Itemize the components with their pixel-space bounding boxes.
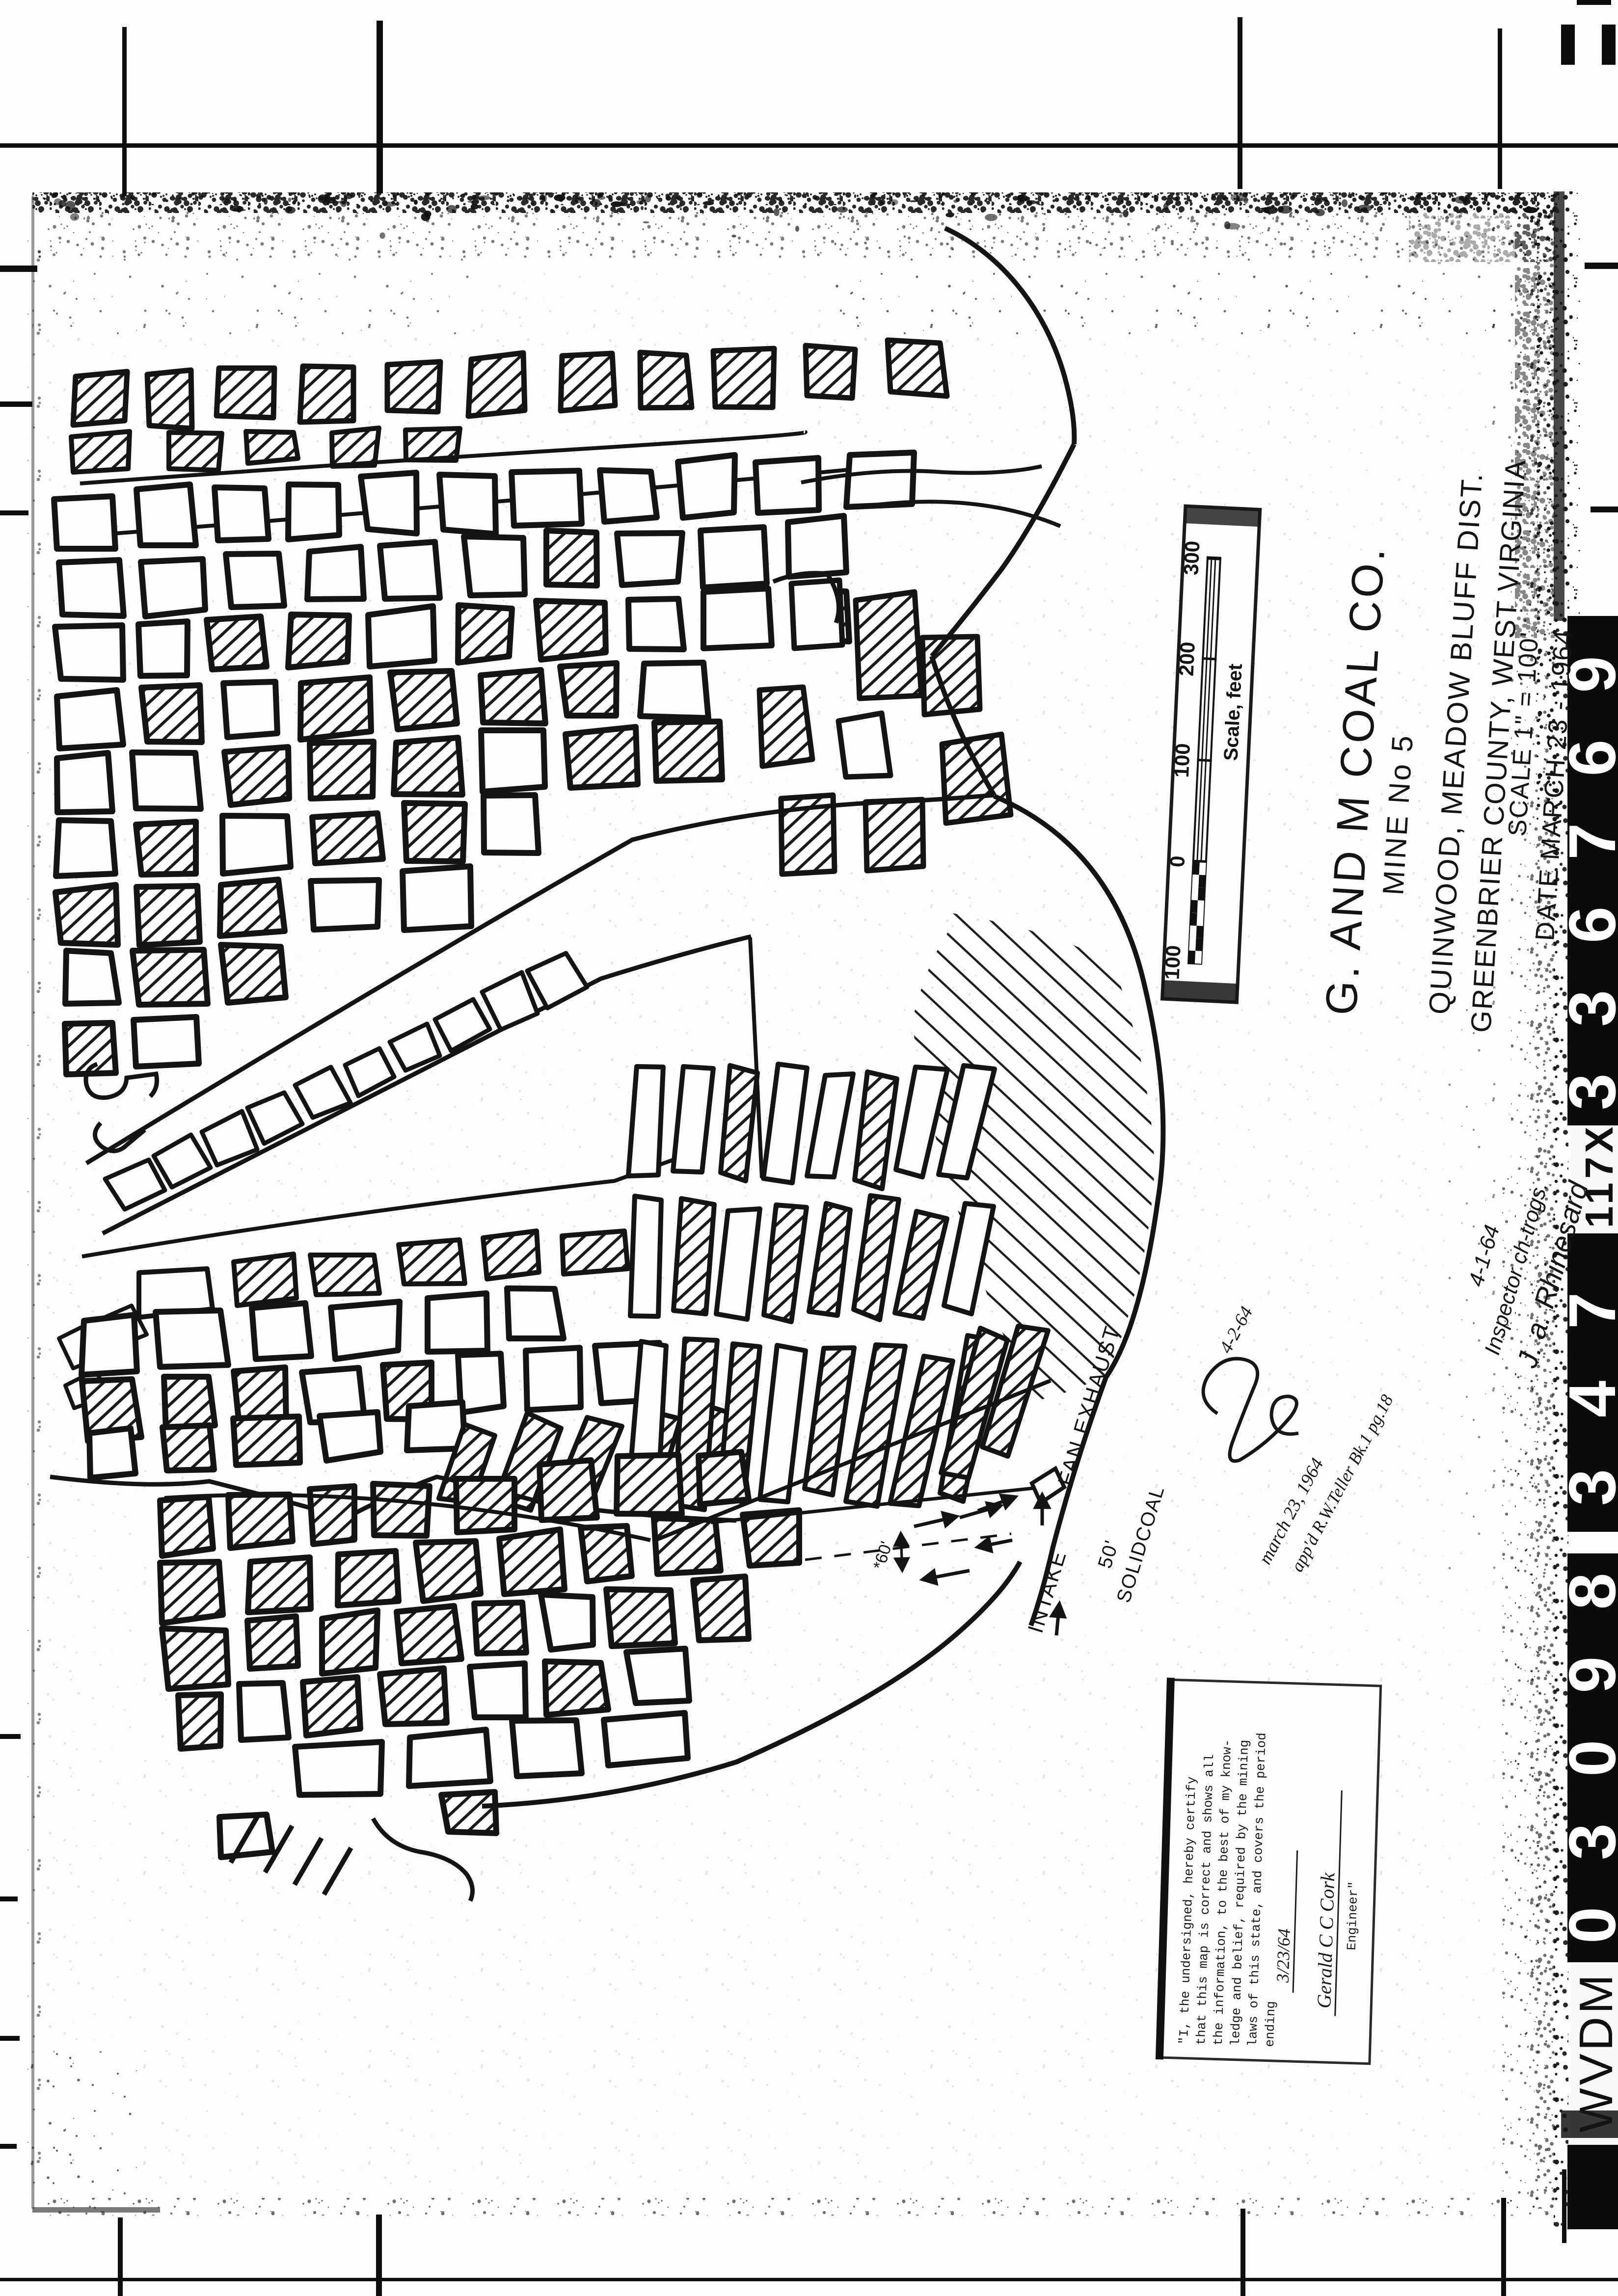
svg-text:100: 100 xyxy=(1160,945,1185,980)
svg-text:3/23/64: 3/23/64 xyxy=(1273,1928,1294,1983)
svg-text:200: 200 xyxy=(1175,641,1199,676)
svg-text:Gerald C C Cork: Gerald C C Cork xyxy=(1313,1871,1339,2008)
svg-text:WVDM: WVDM xyxy=(1570,1972,1618,2133)
svg-text:Scale, feet: Scale, feet xyxy=(1220,663,1246,761)
svg-text:0: 0 xyxy=(1165,855,1189,868)
svg-text:ending: ending xyxy=(1263,2001,1279,2047)
svg-text:100: 100 xyxy=(1170,743,1194,778)
svg-text:Engineer": Engineer" xyxy=(1345,1881,1361,1950)
svg-text:300: 300 xyxy=(1179,540,1204,576)
